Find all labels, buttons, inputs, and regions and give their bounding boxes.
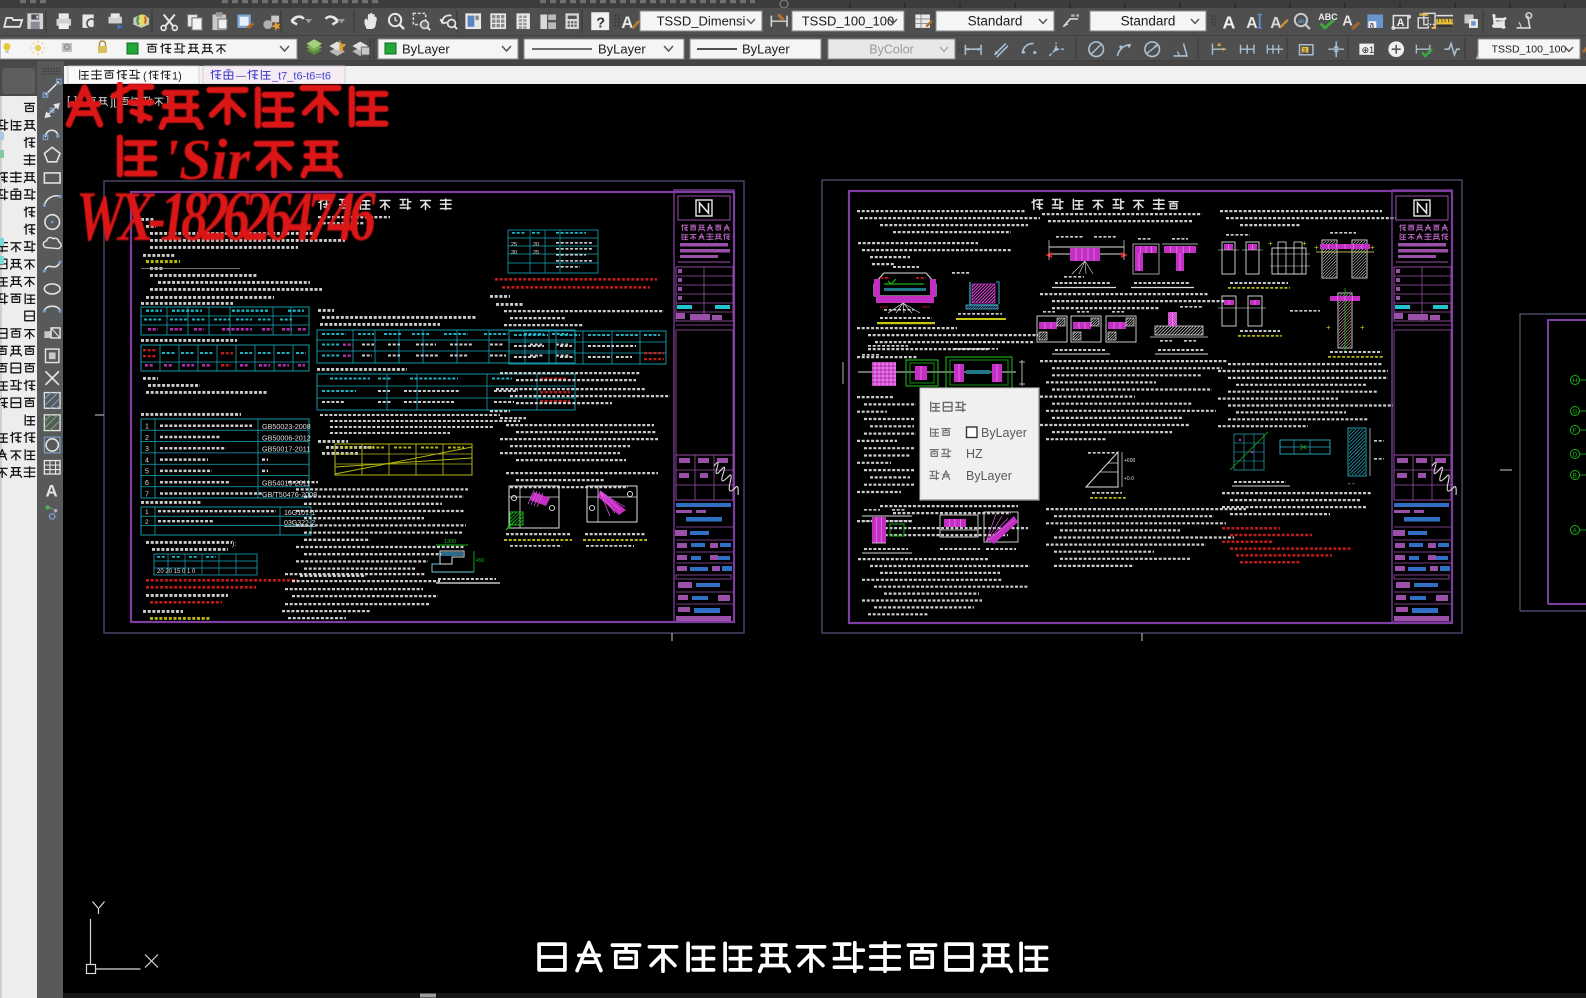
svg-text:ABC: ABC [1318,12,1338,22]
svg-text:—: — [236,71,246,82]
svg-text:3: 3 [145,446,149,453]
svg-text:D: D [1573,452,1578,459]
svg-text:+: + [1370,243,1375,252]
svg-text:(: ( [143,71,147,83]
svg-text:- -: - - [1348,481,1355,488]
svg-text:6: 6 [145,480,149,487]
svg-text:+: + [1360,323,1365,332]
svg-text:abc: abc [1298,18,1308,25]
svg-text:ByLayer: ByLayer [598,42,646,57]
svg-text:30: 30 [511,250,517,256]
svg-text:4: 4 [145,457,149,464]
svg-text:_t7_t6-t6=t6: _t7_t6-t6=t6 [271,71,331,83]
svg-text:+: + [1302,239,1307,248]
svg-text:a: a [1370,20,1375,29]
svg-text:ByLayer: ByLayer [742,42,790,57]
svg-text:TSSD_100_100: TSSD_100_100 [1492,44,1567,56]
svg-text:25: 25 [533,250,539,256]
svg-text:ByLayer: ByLayer [981,426,1027,440]
svg-text:A: A [1573,528,1578,535]
svg-text:Standard: Standard [968,14,1023,29]
svg-text:A: A [1222,12,1235,32]
svg-text:G: G [1573,409,1578,416]
svg-text:HZ: HZ [966,447,983,461]
svg-text:TSSD_100_100: TSSD_100_100 [802,14,895,29]
svg-text:):: ): [232,541,236,548]
svg-text:F: F [1573,428,1577,435]
svg-text:Standard: Standard [1121,14,1176,29]
svg-text:3: 3 [1303,47,1307,54]
svg-text:H: H [1573,378,1578,385]
svg-text:25: 25 [511,242,517,248]
svg-text:+600: +600 [1124,458,1135,464]
svg-text:1300: 1300 [444,539,456,545]
svg-text:⊕1: ⊕1 [1362,45,1375,55]
svg-text:20 20 15 0 1 0: 20 20 15 0 1 0 [157,569,196,575]
svg-text:A: A [621,13,633,32]
svg-text:A: A [1397,17,1405,29]
svg-text:450: 450 [476,558,485,564]
svg-text:A: A [1270,15,1281,32]
svg-text:GB50006-2012: GB50006-2012 [262,433,311,442]
svg-text:+0.0: +0.0 [1124,476,1134,482]
svg-text:B: B [1573,473,1577,480]
svg-text:5: 5 [145,469,149,476]
svg-text:TSSD_Dimensi: TSSD_Dimensi [657,14,746,29]
svg-text:2: 2 [145,435,149,442]
svg-text:ByLayer: ByLayer [402,42,450,57]
svg-text:A: A [45,481,57,500]
svg-text:A: A [1246,15,1257,32]
svg-text:ByLayer: ByLayer [966,469,1012,483]
svg-text:ByColor: ByColor [869,42,913,56]
svg-text:1: 1 [145,509,149,516]
svg-text:1): 1) [172,71,182,83]
svg-text:?: ? [596,15,605,31]
svg-text:GB50023-2008: GB50023-2008 [262,422,311,431]
svg-text:+: + [1268,239,1273,248]
svg-text:7: 7 [145,491,149,498]
svg-text:A: A [1342,14,1353,30]
svg-text:20: 20 [533,242,539,248]
svg-text:2: 2 [145,519,149,526]
svg-text:1: 1 [145,424,149,431]
svg-text:GB50017-2011: GB50017-2011 [262,445,310,454]
svg-text:+: + [1326,323,1331,332]
svg-text:WX-1826264746: WX-1826264746 [76,177,376,256]
svg-text:+: + [1314,243,1319,252]
